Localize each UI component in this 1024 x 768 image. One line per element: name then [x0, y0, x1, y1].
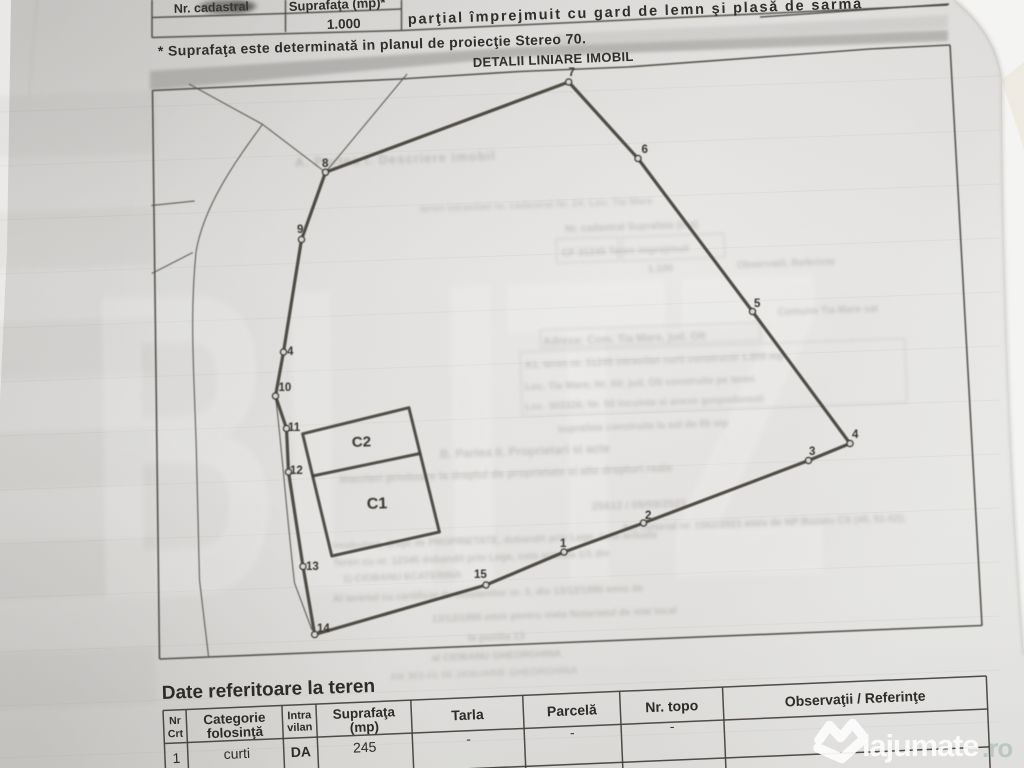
- svg-text:1.000: 1.000: [327, 16, 361, 32]
- svg-text:4: 4: [852, 429, 859, 441]
- svg-text:4: 4: [287, 346, 294, 358]
- svg-text:Crt: Crt: [168, 728, 184, 741]
- svg-text:curti: curti: [223, 745, 250, 762]
- svg-text:3: 3: [809, 446, 815, 458]
- svg-text:245: 245: [353, 739, 377, 756]
- svg-text:9: 9: [297, 224, 303, 236]
- svg-text:la pozitia 13: la pozitia 13: [468, 631, 525, 644]
- svg-text:10: 10: [279, 382, 292, 394]
- svg-text:DA: DA: [290, 743, 311, 760]
- svg-text:6: 6: [642, 144, 648, 156]
- svg-text:14: 14: [317, 623, 330, 635]
- svg-text:.ro: .ro: [982, 733, 1012, 763]
- svg-text:13: 13: [306, 561, 319, 573]
- svg-text:Nr. topo: Nr. topo: [645, 697, 699, 715]
- svg-text:vilan: vilan: [287, 721, 313, 734]
- svg-text:C1: C1: [367, 495, 388, 513]
- svg-text:(mp): (mp): [349, 719, 379, 735]
- svg-text:Nr: Nr: [169, 715, 181, 727]
- svg-text:12: 12: [290, 465, 303, 477]
- svg-text:Tarla: Tarla: [451, 706, 484, 723]
- svg-text:folosinţă: folosinţă: [207, 724, 264, 741]
- svg-text:1: 1: [560, 538, 567, 550]
- svg-text:2: 2: [645, 510, 651, 522]
- svg-text:15: 15: [474, 569, 487, 581]
- svg-text:5: 5: [754, 298, 761, 310]
- svg-text:C2: C2: [352, 433, 372, 451]
- svg-text:8: 8: [322, 158, 329, 170]
- svg-text:7: 7: [569, 67, 575, 79]
- svg-text:11: 11: [288, 422, 301, 434]
- svg-text:lajumate: lajumate: [862, 728, 979, 763]
- svg-text:Intra: Intra: [287, 709, 312, 722]
- svg-text:Parcelă: Parcelă: [547, 701, 598, 719]
- svg-text:1.100: 1.100: [648, 263, 674, 275]
- svg-text:1: 1: [172, 750, 181, 766]
